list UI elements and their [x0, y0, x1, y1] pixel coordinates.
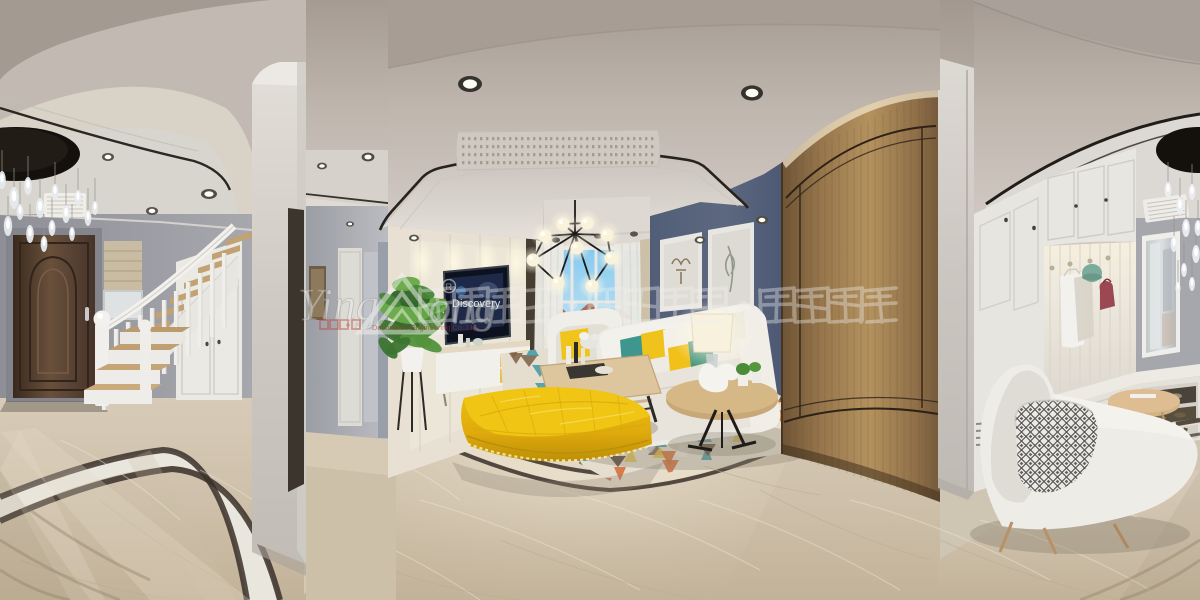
svg-text:Decoration Engineering Co.,L: Decoration Engineering Co.,Ltd	[372, 323, 477, 332]
